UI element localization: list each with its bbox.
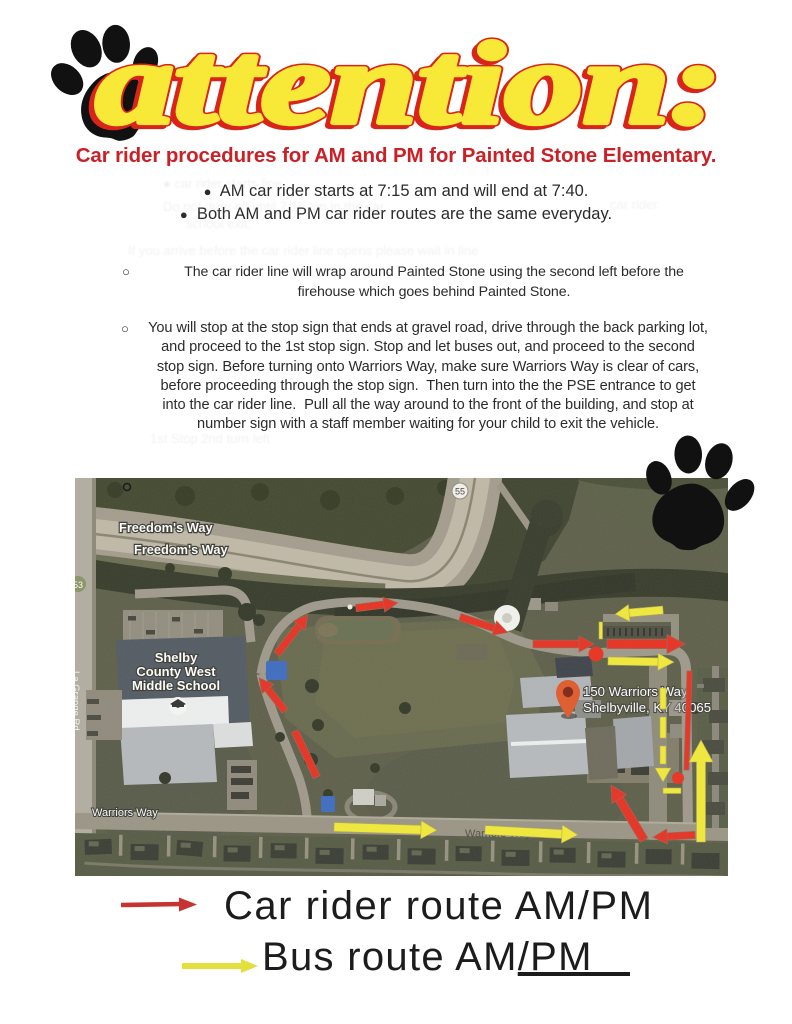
svg-text:attention:: attention:	[96, 20, 722, 145]
